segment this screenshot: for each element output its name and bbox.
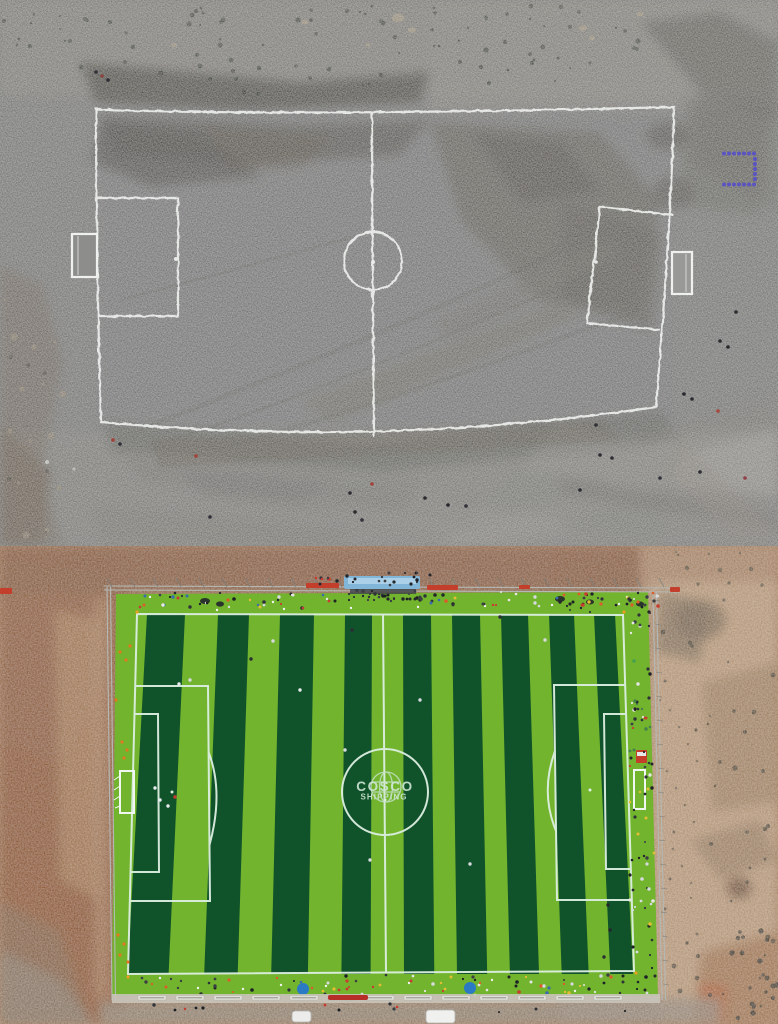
svg-text:SHIPPING: SHIPPING — [360, 793, 407, 802]
